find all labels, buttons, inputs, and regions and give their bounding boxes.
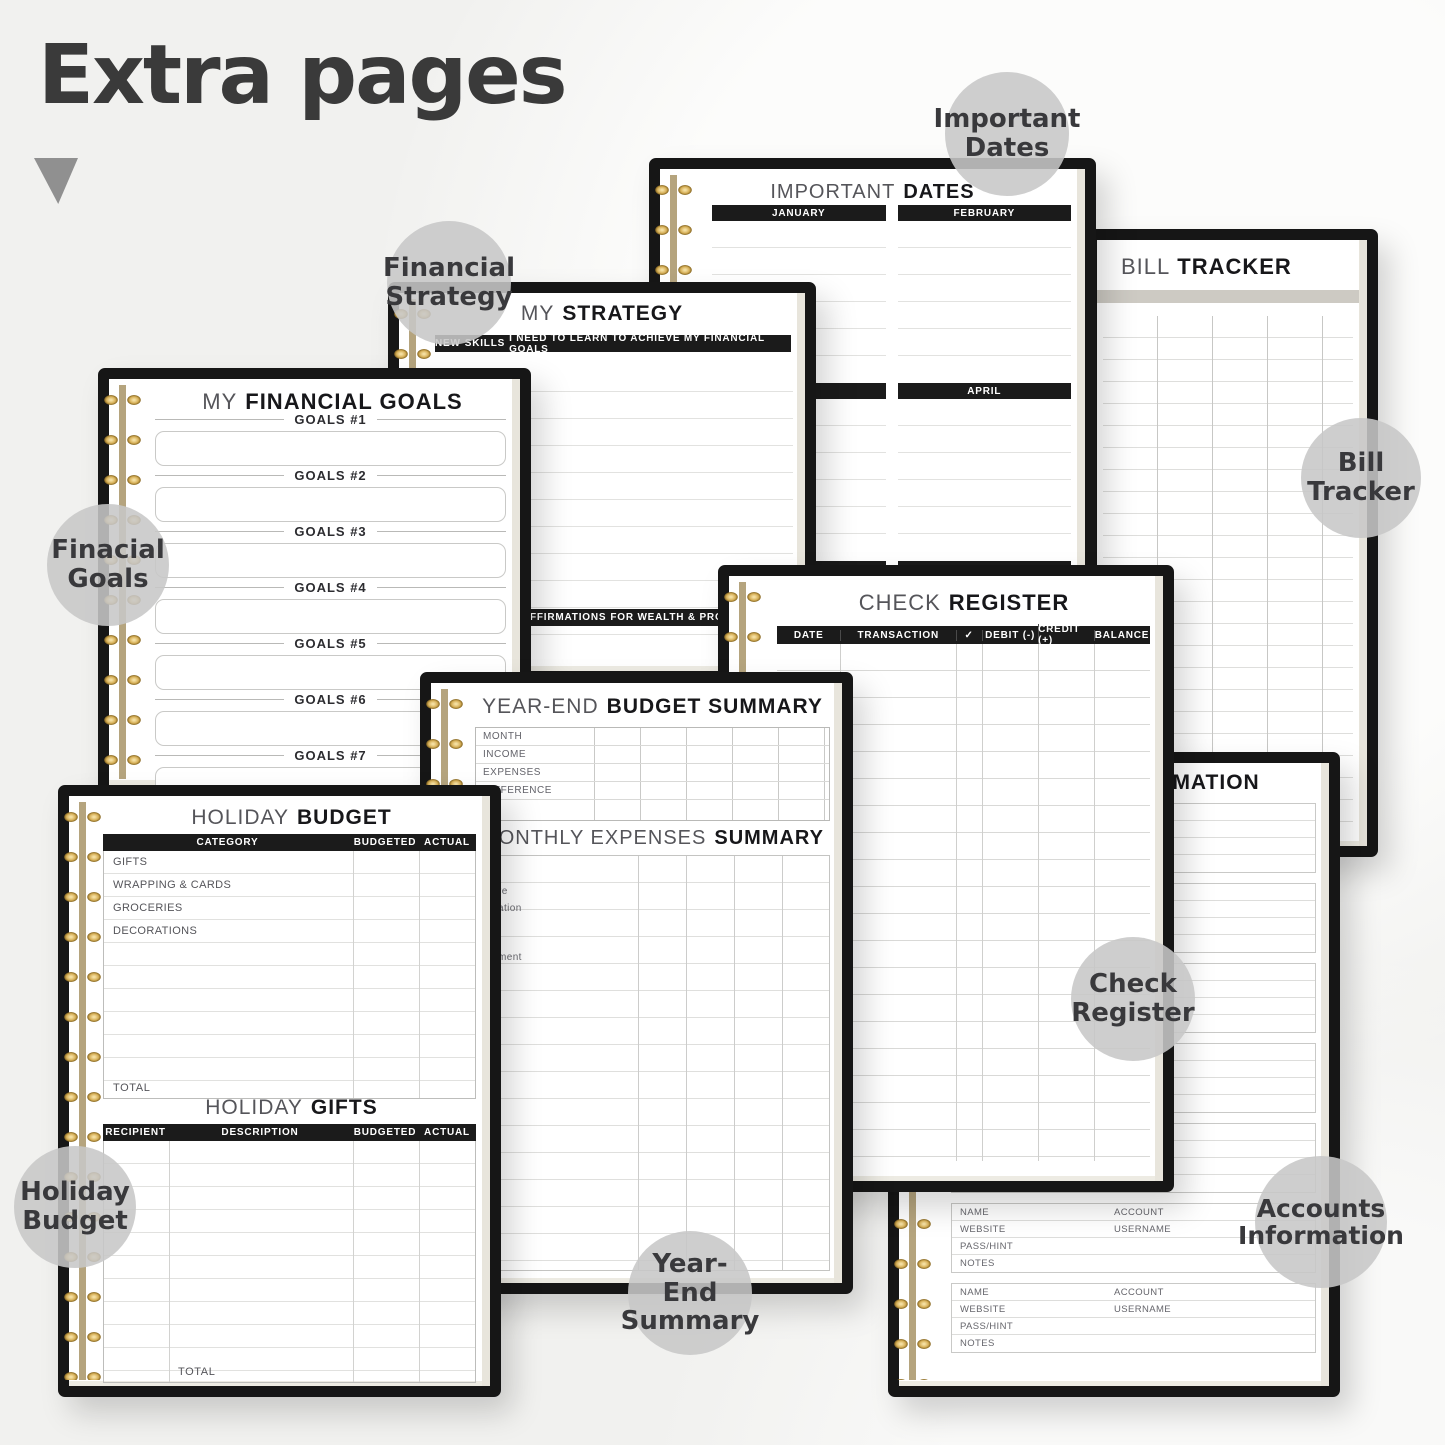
strategy-title-bold: STRATEGY	[562, 302, 683, 325]
month-section-february: FEBRUARY	[898, 205, 1072, 369]
goal-label: GOALS #6	[294, 692, 366, 707]
holiday-budget-title-bold: BUDGET	[297, 806, 392, 829]
year-end-table: MONTH INCOME EXPENSES DIFFERENCE	[475, 727, 830, 821]
check-register-title-bold: REGISTER	[949, 590, 1069, 615]
label-line: Strategy	[385, 283, 512, 312]
col-description: DESCRIPTION	[168, 1127, 352, 1138]
holiday-budget-title: HOLIDAYBUDGET	[93, 806, 490, 830]
field-notes: NOTES	[960, 1338, 995, 1349]
affirmations-bar-bold: AFFIRMATIONS	[522, 612, 606, 623]
label-line: Finacial	[51, 536, 165, 565]
label-line: Summary	[621, 1307, 760, 1336]
check-register-header: DATE TRANSACTION ✓ DEBIT (-) CREDIT (+) …	[777, 626, 1150, 644]
monthly-expenses-title: MONTHLY EXPENSESSUMMARY	[463, 827, 842, 850]
goal-label: GOALS #1	[294, 412, 366, 427]
goal-box	[155, 543, 506, 578]
label-line: Accounts	[1257, 1195, 1386, 1223]
goal-section-2: GOALS #2	[155, 467, 506, 522]
month-header-april: APRIL	[898, 383, 1072, 399]
col-category: CATEGORY	[103, 837, 352, 848]
page-title: Extra pages	[38, 28, 566, 123]
field-account: ACCOUNT	[1114, 1287, 1164, 1298]
holiday-gifts-header: RECIPIENT DESCRIPTION BUDGETED ACTUAL	[103, 1124, 476, 1141]
holiday-budget-table: CATEGORY BUDGETED ACTUAL GIFTS WRAPPING …	[103, 834, 476, 1099]
goal-label: GOALS #3	[294, 524, 366, 539]
col-check-icon: ✓	[956, 630, 982, 641]
goal-box	[155, 431, 506, 466]
col-transaction: TRANSACTION	[840, 630, 956, 641]
important-dates-title-bold: DATES	[903, 181, 974, 203]
total-label: TOTAL	[178, 1366, 215, 1378]
label-line: Check	[1089, 970, 1177, 999]
label-line: Dates	[965, 134, 1050, 163]
bill-tracker-title-light: BILL	[1121, 254, 1170, 279]
label-line: Information	[1238, 1222, 1404, 1250]
goal-label: GOALS #7	[294, 748, 366, 763]
holiday-gifts-title: HOLIDAYGIFTS	[93, 1096, 490, 1120]
monthly-expenses-grid: re ation ment	[475, 855, 830, 1271]
label-holiday-budget: Holiday Budget	[14, 1146, 136, 1268]
strategy-skills-bar: NEW SKILLS I NEED TO LEARN TO ACHIEVE MY…	[435, 335, 791, 352]
partial-row-label: ment	[498, 952, 522, 963]
holiday-gifts-body: TOTAL	[103, 1141, 476, 1383]
monthly-expenses-title-light: MONTHLY EXPENSES	[481, 827, 706, 849]
month-section-april: APRIL	[898, 383, 1072, 547]
holiday-budget-body: GIFTS WRAPPING & CARDS GROCERIES DECORAT…	[103, 851, 476, 1099]
label-finacial-goals: Finacial Goals	[47, 504, 169, 626]
check-register-title: CHECKREGISTER	[765, 590, 1163, 616]
holiday-budget-header: CATEGORY BUDGETED ACTUAL	[103, 834, 476, 851]
col-date: DATE	[777, 630, 840, 641]
bill-tracker-header-bar	[1097, 290, 1359, 303]
goal-label: GOALS #4	[294, 580, 366, 595]
label-line: Year-End	[628, 1250, 752, 1307]
monthly-expenses-title-bold: SUMMARY	[714, 827, 824, 849]
label-accounts-information: Accounts Information	[1255, 1156, 1387, 1288]
field-name: NAME	[960, 1287, 989, 1298]
field-website: WEBSITE	[960, 1224, 1006, 1235]
label-line: Important	[934, 105, 1081, 134]
col-debit: DEBIT (-)	[982, 630, 1038, 641]
col-credit: CREDIT (+)	[1038, 624, 1094, 646]
bill-tracker-title-bold: TRACKER	[1177, 254, 1292, 279]
field-notes: NOTES	[960, 1258, 995, 1269]
row-difference: DIFFERENCE	[476, 782, 829, 800]
holiday-budget-page: HOLIDAYBUDGET CATEGORY BUDGETED ACTUAL G…	[58, 785, 501, 1397]
label-line: Holiday	[20, 1178, 130, 1207]
row-income: INCOME	[476, 746, 829, 764]
field-username: USERNAME	[1114, 1304, 1171, 1315]
holiday-gifts-table: RECIPIENT DESCRIPTION BUDGETED ACTUAL TO…	[103, 1124, 476, 1383]
label-line: Bill	[1338, 449, 1385, 478]
label-line: Goals	[67, 565, 148, 594]
label-important-dates: Important Dates	[945, 72, 1069, 196]
strategy-title-light: MY	[521, 302, 555, 325]
month-lines	[898, 221, 1072, 369]
col-balance: BALANCE	[1094, 630, 1150, 641]
label-line: Register	[1071, 999, 1195, 1028]
field-website: WEBSITE	[960, 1304, 1006, 1315]
holiday-budget-paper: HOLIDAYBUDGET CATEGORY BUDGETED ACTUAL G…	[69, 796, 490, 1386]
holiday-gifts-title-bold: GIFTS	[311, 1096, 378, 1119]
label-line: Budget	[22, 1207, 128, 1236]
goal-label: GOALS #5	[294, 636, 366, 651]
field-username: USERNAME	[1114, 1224, 1171, 1235]
skills-bar-post: I NEED TO LEARN TO ACHIEVE MY FINANCIAL …	[509, 333, 791, 355]
field-name: NAME	[960, 1207, 989, 1218]
check-register-title-light: CHECK	[859, 590, 941, 615]
account-block: NAMEACCOUNT WEBSITEUSERNAME PASS/HINT NO…	[951, 1283, 1316, 1353]
goal-section-4: GOALS #4	[155, 579, 506, 634]
goal-box	[155, 487, 506, 522]
label-year-end-summary: Year-End Summary	[628, 1231, 752, 1355]
goal-section-3: GOALS #3	[155, 523, 506, 578]
holiday-budget-title-light: HOLIDAY	[191, 806, 289, 829]
row-expenses: EXPENSES	[476, 764, 829, 782]
year-end-title: YEAR-ENDBUDGET SUMMARY	[463, 695, 842, 719]
bill-tracker-title: BILLTRACKER	[1121, 254, 1292, 280]
label-line: Financial	[383, 254, 515, 283]
monthly-expenses-columns	[591, 856, 829, 1270]
label-line: Tracker	[1307, 478, 1415, 507]
important-dates-title-light: IMPORTANT	[770, 181, 895, 203]
col-recipient: RECIPIENT	[103, 1127, 168, 1138]
month-header-february: FEBRUARY	[898, 205, 1072, 221]
holiday-gifts-title-light: HOLIDAY	[205, 1096, 303, 1119]
field-pass-hint: PASS/HINT	[960, 1321, 1013, 1332]
year-end-title-bold: BUDGET SUMMARY	[607, 695, 823, 718]
row-month: MONTH	[476, 728, 829, 746]
year-end-title-light: YEAR-END	[482, 695, 599, 718]
col-budgeted: BUDGETED	[352, 837, 418, 848]
label-bill-tracker: Bill Tracker	[1301, 418, 1421, 538]
col-budgeted: BUDGETED	[352, 1127, 418, 1138]
goal-section-1: GOALS #1	[155, 411, 506, 466]
total-label: TOTAL	[113, 1082, 150, 1094]
down-arrow-icon	[34, 158, 78, 204]
label-check-register: Check Register	[1071, 937, 1195, 1061]
product-image: Extra pages BILLTRACKER IMPORTANTDATES J…	[0, 0, 1445, 1445]
label-financial-strategy: Financial Strategy	[387, 221, 511, 345]
spiral-binding	[60, 802, 106, 1380]
month-header-january: JANUARY	[712, 205, 886, 221]
goal-box	[155, 599, 506, 634]
field-account: ACCOUNT	[1114, 1207, 1164, 1218]
field-pass-hint: PASS/HINT	[960, 1241, 1013, 1252]
col-actual: ACTUAL	[418, 837, 476, 848]
partial-row-label: ation	[498, 903, 522, 914]
goal-label: GOALS #2	[294, 468, 366, 483]
col-actual: ACTUAL	[418, 1127, 476, 1138]
month-lines	[898, 399, 1072, 547]
